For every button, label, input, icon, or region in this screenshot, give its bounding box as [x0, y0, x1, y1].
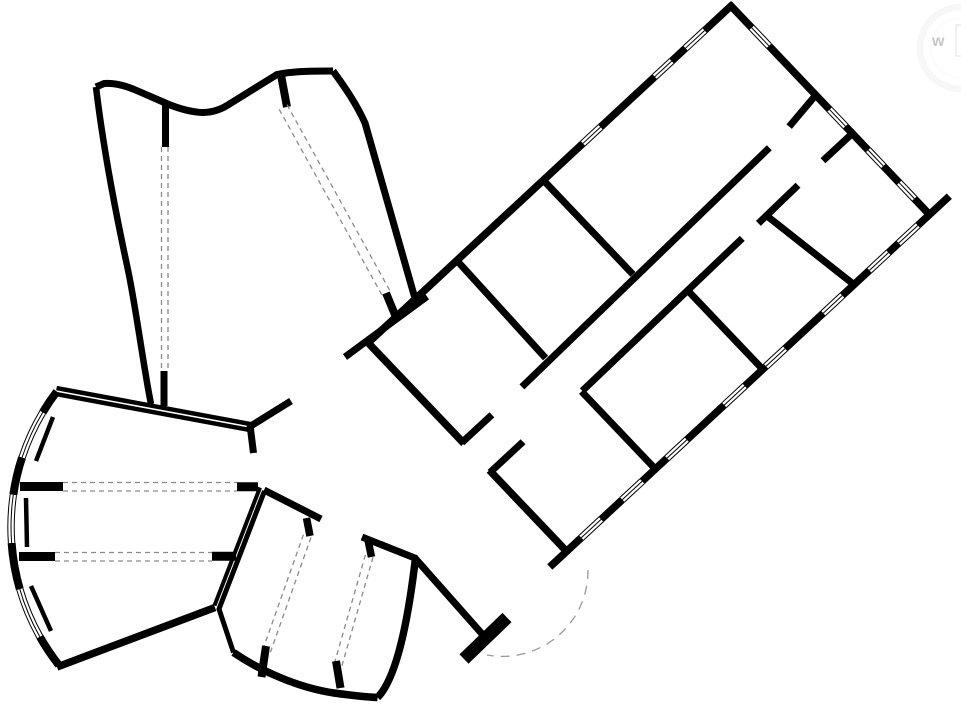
svg-text:w: w [931, 33, 945, 50]
